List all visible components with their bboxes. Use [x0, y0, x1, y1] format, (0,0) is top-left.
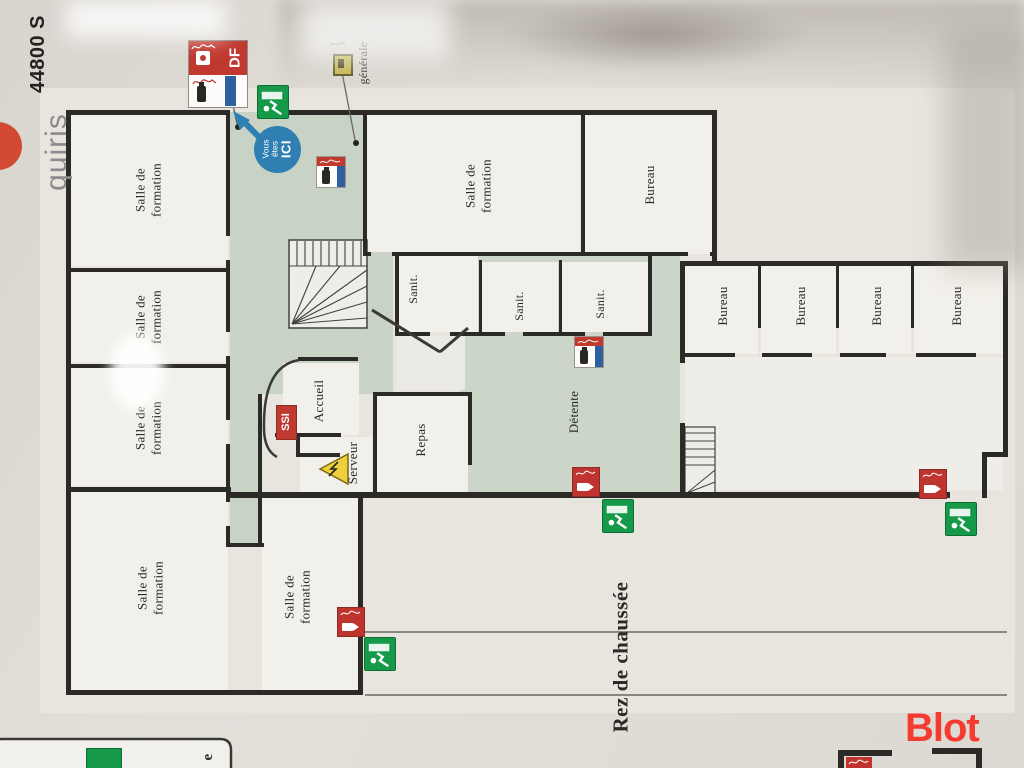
fire-alarm-icon	[572, 467, 600, 497]
room-label: Bureau	[793, 286, 809, 325]
room-label: Serveur	[345, 442, 361, 485]
blue-band	[225, 76, 236, 106]
you-are-here-ici: ICI	[279, 137, 293, 161]
fire-alarm-icon	[337, 607, 365, 637]
room-label: Bureau	[642, 165, 658, 204]
extinguisher-icon	[197, 86, 206, 102]
handwriting-squiggle	[329, 38, 347, 50]
fire-alarm-icon	[846, 757, 872, 768]
fire-alarm-panel-icon: DF	[188, 40, 248, 108]
room-label: Salle de formation	[132, 395, 163, 461]
emergency-exit-icon	[257, 85, 289, 119]
emergency-exit-icon	[364, 637, 396, 671]
room-label: Bureau	[715, 286, 731, 325]
room-label: Détente	[566, 391, 582, 434]
room-label: Salle de formation	[281, 564, 312, 630]
emergency-exit-icon	[602, 499, 634, 533]
generale-label: générale	[356, 41, 370, 84]
legend-exit-icon	[86, 748, 122, 768]
emergency-exit-icon	[945, 502, 977, 536]
room-label: Accueil	[311, 380, 327, 423]
brand-name-text: quiris	[39, 113, 75, 191]
photo-of-evacuation-plan: 44800 S quiris DF générale	[0, 0, 1024, 768]
extinguisher-nub	[199, 82, 204, 86]
room-label: Sanit.	[406, 274, 420, 303]
floor-title: Rez de chaussée	[608, 582, 633, 733]
room-label: Bureau	[949, 286, 965, 325]
df-label: DF	[227, 48, 244, 68]
you-are-here-text: Vous êtes	[261, 137, 279, 161]
fire-alarm-icon	[919, 469, 947, 499]
floor-plan-graphics	[0, 0, 1024, 768]
power-cutoff-icon	[333, 54, 353, 76]
room-label: Salle de formation	[132, 157, 163, 223]
legend-text-fragment: e	[199, 754, 217, 761]
extinguisher-icon	[316, 156, 346, 188]
manual-call-point-icon	[196, 51, 210, 65]
room-label: Salle de formation	[134, 555, 165, 621]
you-are-here-marker: Vous êtes ICI	[254, 126, 301, 173]
room-label: Salle de formation	[462, 153, 493, 219]
room-label: Repas	[413, 423, 429, 456]
watermark-logo: Blot	[905, 706, 979, 751]
room-label: Sanit.	[593, 289, 607, 318]
room-label: Salle de formation	[132, 284, 163, 350]
room-label: Sanit.	[512, 291, 526, 320]
ssi-label: SSI	[280, 413, 292, 431]
room-label: Bureau	[869, 286, 885, 325]
extinguisher-icon	[574, 336, 604, 368]
postal-code-text: 44800 S	[26, 15, 50, 93]
ssi-tag: SSI	[276, 405, 297, 440]
